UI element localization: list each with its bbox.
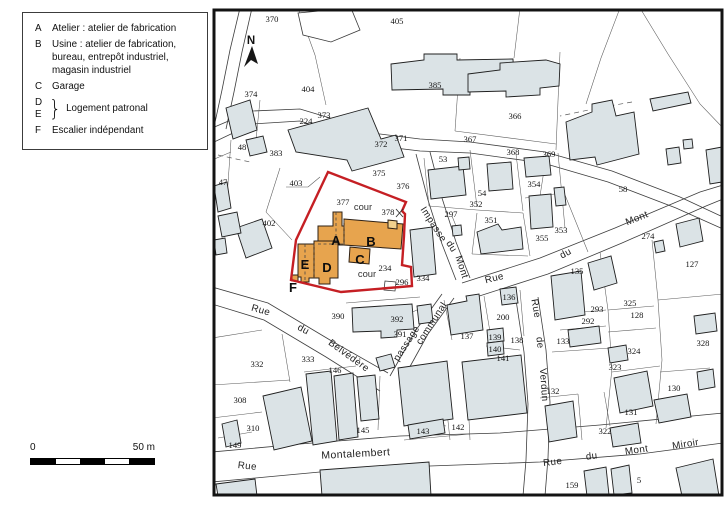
parcel-label-130: 130 — [668, 383, 681, 393]
building-outline — [384, 281, 396, 291]
scale-segment — [130, 459, 154, 464]
legend-text: Atelier : atelier de fabrication — [52, 23, 201, 36]
scale-segment — [55, 459, 81, 464]
parcel-label-145: 145 — [357, 425, 370, 435]
parcel-label-308: 308 — [234, 395, 247, 405]
parcel-label-224: 224 — [300, 116, 314, 126]
parcel-label-383: 383 — [270, 148, 283, 158]
parcel-label-353: 353 — [555, 225, 568, 235]
scale-segment — [81, 459, 105, 464]
parcel-label-370: 370 — [266, 14, 279, 24]
building-B-annex — [388, 220, 397, 229]
building — [608, 345, 628, 363]
building — [551, 271, 585, 320]
building-letter-C: C — [355, 252, 365, 267]
building — [487, 162, 513, 191]
parcel-label-332: 332 — [251, 359, 264, 369]
building — [218, 212, 241, 237]
parcel-label-274: 274 — [642, 231, 656, 241]
parcel-label-142: 142 — [452, 422, 465, 432]
building — [666, 147, 681, 165]
building — [654, 240, 665, 253]
street-label-verdun: Verdun — [537, 368, 550, 402]
parcel-label-334: 334 — [417, 273, 431, 283]
building — [545, 401, 577, 442]
legend-keys-de: D E — [31, 97, 49, 121]
parcel-label-323: 323 — [609, 362, 622, 372]
cadastral-map-figure: N370405385374404373224366367371372483833… — [0, 0, 728, 515]
legend-item-escalier: F Escalier indépendant — [31, 125, 201, 138]
parcel-label-403: 403 — [290, 178, 303, 188]
building-letter-E: E — [301, 257, 310, 272]
street-label-rue: Rue — [237, 460, 257, 473]
legend-key: E — [35, 109, 42, 121]
parcel-label-369: 369 — [543, 149, 556, 159]
parcel-label-54: 54 — [478, 188, 487, 198]
parcel-label-293: 293 — [591, 304, 604, 314]
legend-text: Garage — [52, 81, 201, 94]
building-letter-B: B — [366, 234, 375, 249]
building — [410, 227, 436, 277]
building-letter-F: F — [289, 280, 297, 295]
parcel-label-53: 53 — [439, 154, 448, 164]
building — [683, 139, 693, 149]
parcel-label-404: 404 — [302, 84, 316, 94]
parcel-label-58: 58 — [619, 184, 628, 194]
parcel-label-146: 146 — [329, 365, 343, 375]
scale-start-label: 0 — [30, 442, 36, 453]
parcel-label-128: 128 — [631, 310, 644, 320]
legend-box: A Atelier : atelier de fabrication B Usi… — [22, 12, 208, 150]
parcel-label-127: 127 — [686, 259, 700, 269]
street-label-du: du — [585, 450, 598, 462]
legend-key: A — [31, 23, 52, 36]
parcel-label-296: 296 — [396, 277, 410, 287]
legend-key: C — [31, 81, 52, 94]
parcel-label-143: 143 — [417, 426, 430, 436]
parcel-label-374: 374 — [245, 89, 259, 99]
legend-text: Usine : atelier de fabrication, bureau, … — [52, 39, 201, 78]
parcel-label-324: 324 — [628, 346, 642, 356]
building — [428, 166, 466, 199]
parcel-label-136: 136 — [503, 292, 517, 302]
parcel-label-367: 367 — [464, 134, 478, 144]
parcel-label-310: 310 — [247, 423, 260, 433]
legend-item-atelier: A Atelier : atelier de fabrication — [31, 23, 201, 36]
parcel-label-355: 355 — [536, 233, 549, 243]
street-label-de: de — [533, 336, 545, 349]
scale-end-label: 50 m — [133, 442, 155, 453]
legend-text: Escalier indépendant — [52, 125, 201, 138]
parcel-label-351: 351 — [485, 215, 498, 225]
parcel-label-135: 135 — [571, 266, 584, 276]
scale-bar: 0 50 m — [30, 442, 155, 465]
building — [529, 194, 553, 229]
legend-item-logement: D E } Logement patronal — [31, 97, 201, 122]
parcel-label-159: 159 — [566, 480, 579, 490]
building — [452, 225, 462, 236]
scale-labels: 0 50 m — [30, 442, 155, 453]
parcel-label-137: 137 — [461, 331, 475, 341]
parcel-label-297: 297 — [445, 209, 459, 219]
parcel-label-200: 200 — [497, 312, 510, 322]
parcel-label-376: 376 — [397, 181, 411, 191]
scale-segments — [30, 458, 155, 465]
building — [584, 467, 609, 496]
parcel-label-139: 139 — [489, 332, 502, 342]
building — [462, 355, 527, 420]
parcel-label-131: 131 — [625, 407, 638, 417]
building — [568, 326, 601, 347]
legend-text: Logement patronal — [66, 103, 201, 116]
parcel-label-390: 390 — [332, 311, 345, 321]
courtyard-label: cour — [354, 201, 372, 212]
building — [458, 157, 470, 170]
parcel-label-368: 368 — [507, 147, 520, 157]
parcel-label-372: 372 — [375, 139, 388, 149]
building — [554, 187, 566, 206]
parcel-label-378: 378 — [382, 207, 395, 217]
courtyard-label: cour — [358, 268, 376, 279]
building — [611, 465, 632, 495]
parcel-label-149: 149 — [229, 440, 242, 450]
parcel-label-322: 322 — [599, 426, 612, 436]
legend-key: F — [31, 125, 52, 138]
building — [524, 156, 551, 177]
building — [214, 238, 227, 255]
street-label-rue: Rue — [543, 456, 564, 469]
parcel-label-138: 138 — [511, 335, 524, 345]
parcel-label-366: 366 — [509, 111, 523, 121]
legend-item-garage: C Garage — [31, 81, 201, 94]
building — [357, 375, 379, 421]
scale-segment — [104, 459, 130, 464]
building-letter-A: A — [331, 233, 341, 248]
parcel-label-141: 141 — [497, 353, 510, 363]
building — [694, 313, 717, 334]
parcel-label-371: 371 — [395, 133, 408, 143]
parcel-label-234: 234 — [379, 263, 393, 273]
parcel-label-325: 325 — [624, 298, 637, 308]
parcel-label-292: 292 — [582, 316, 595, 326]
parcel-label-133: 133 — [557, 336, 570, 346]
parcel-label-354: 354 — [528, 179, 542, 189]
scale-segment — [31, 459, 55, 464]
building — [246, 136, 267, 156]
parcel-label-377: 377 — [337, 197, 351, 207]
parcel-label-375: 375 — [373, 168, 386, 178]
legend-key: B — [31, 39, 52, 78]
parcel-label-5: 5 — [637, 475, 641, 485]
parcel-label-385: 385 — [429, 80, 442, 90]
parcel-label-405: 405 — [391, 16, 404, 26]
parcel-label-352: 352 — [470, 199, 483, 209]
brace-glyph: } — [49, 95, 61, 124]
parcel-label-402: 402 — [263, 218, 276, 228]
building — [398, 361, 453, 426]
parcel-label-333: 333 — [302, 354, 315, 364]
legend-key: D — [35, 97, 42, 109]
parcel-label-392: 392 — [391, 314, 404, 324]
legend-item-usine: B Usine : atelier de fabrication, bureau… — [31, 39, 201, 78]
parcel-label-373: 373 — [318, 110, 331, 120]
north-label: N — [247, 35, 255, 47]
building — [697, 369, 715, 390]
parcel-label-48: 48 — [238, 142, 247, 152]
building-letter-D: D — [322, 260, 331, 275]
parcel-label-47: 47 — [219, 177, 228, 187]
parcel-label-328: 328 — [697, 338, 710, 348]
